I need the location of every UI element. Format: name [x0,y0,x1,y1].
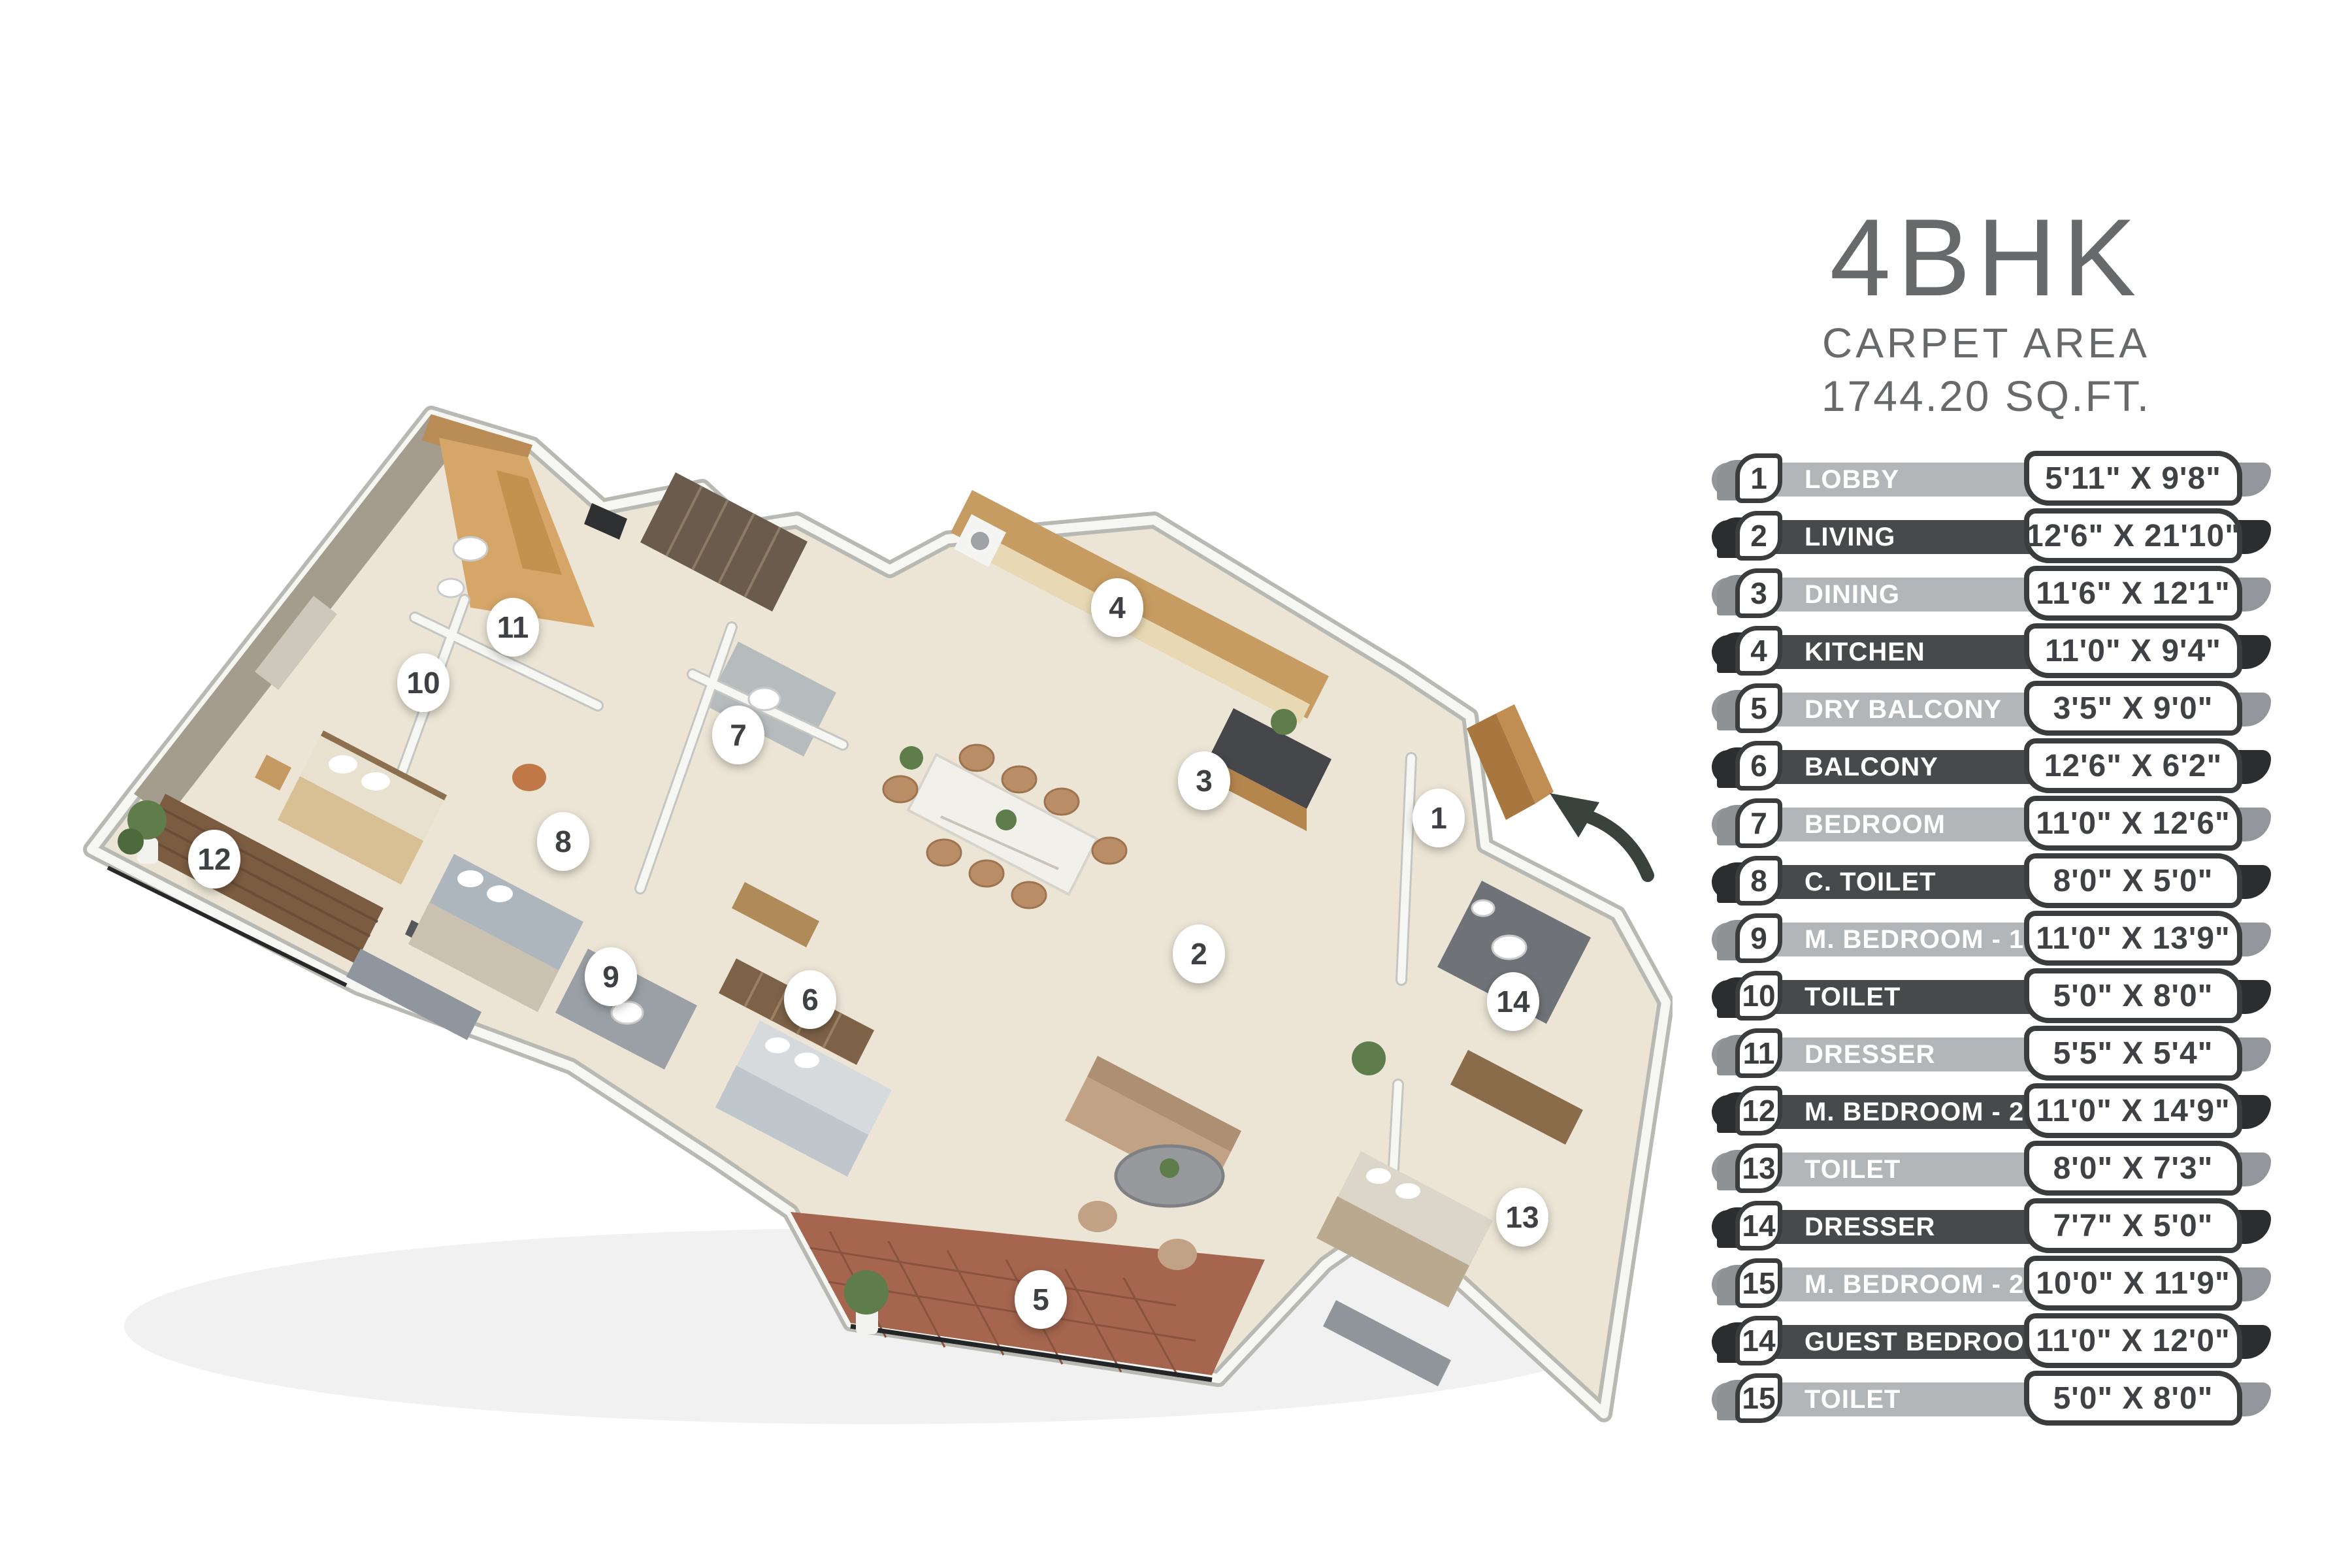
legend-room-label: LIVING [1805,520,1895,554]
room-marker: 11 [487,598,539,657]
legend-room-dimension: 10'0" X 11'9" [2024,1256,2242,1311]
room-marker: 1 [1413,789,1465,847]
legend-room-label: GUEST BEDROOM [1805,1325,2047,1359]
legend-row: LIVING12'6" X 21'10"2 [1712,507,2280,564]
svg-text:4: 4 [1109,591,1126,625]
legend-room-label: BALCONY [1805,750,1938,784]
legend-room-number: 7 [1735,798,1782,848]
legend-room-number: 15 [1735,1373,1782,1423]
legend-room-number: 14 [1735,1201,1782,1250]
legend-row: C. TOILET8'0" X 5'0"8 [1712,852,2280,909]
legend-room-number: 9 [1735,913,1782,963]
svg-text:5: 5 [1032,1282,1049,1316]
svg-text:9: 9 [602,960,619,994]
room-marker: 8 [537,812,589,871]
legend-row: LOBBY5'11" X 9'8"1 [1712,449,2280,507]
legend-room-number: 2 [1735,511,1782,561]
svg-text:13: 13 [1505,1200,1539,1234]
legend-room-number: 12 [1735,1086,1782,1135]
legend-row: KITCHEN11'0" X 9'4"4 [1712,622,2280,679]
room-marker: 4 [1091,578,1143,637]
title-subtitle: CARPET AREA [1699,319,2274,367]
legend-room-number: 5 [1735,683,1782,733]
svg-text:1: 1 [1430,801,1447,835]
legend-room-number: 11 [1735,1028,1782,1078]
floorplan-3d: 1234567891011121314 [39,392,1673,1477]
legend-room-label: C. TOILET [1805,865,1936,899]
legend-row: M. BEDROOM - 111'0" X 13'9"9 [1712,909,2280,967]
legend-row: M. BEDROOM - 211'0" X 14'9"12 [1712,1082,2280,1139]
room-legend: LOBBY5'11" X 9'8"1LIVING12'6" X 21'10"2D… [1712,449,2280,1427]
legend-row: DINING11'6" X 12'1"3 [1712,564,2280,622]
legend-room-dimension: 7'7" X 5'0" [2024,1198,2242,1253]
legend-row: BEDROOM11'0" X 12'6"7 [1712,794,2280,852]
floorplan-area: 1234567891011121314 [39,392,1673,1477]
legend-room-label: M. BEDROOM - 2 [1805,1095,2024,1129]
page-title: 4BHK [1699,203,2274,312]
legend-room-dimension: 11'6" X 12'1" [2024,566,2242,621]
room-marker: 7 [712,706,764,764]
legend-room-dimension: 5'0" X 8'0" [2024,968,2242,1023]
legend-room-number: 1 [1735,453,1782,503]
svg-text:10: 10 [406,666,440,700]
legend-room-dimension: 11'0" X 12'6" [2024,796,2242,851]
svg-text:3: 3 [1196,764,1213,798]
room-marker: 14 [1487,972,1539,1031]
armchair [1078,1201,1117,1232]
legend-room-number: 10 [1735,971,1782,1021]
room-marker: 10 [397,653,449,712]
armchair [1158,1239,1197,1270]
room-marker: 6 [784,970,836,1029]
legend-room-label: BEDROOM [1805,808,1946,841]
legend-room-label: KITCHEN [1805,635,1925,669]
legend-room-dimension: 11'0" X 12'0" [2024,1313,2242,1368]
legend-room-dimension: 11'0" X 13'9" [2024,911,2242,966]
legend-room-dimension: 8'0" X 7'3" [2024,1141,2242,1196]
svg-text:7: 7 [730,718,747,752]
legend-room-dimension: 8'0" X 5'0" [2024,853,2242,908]
legend-row: TOILET5'0" X 8'0"15 [1712,1369,2280,1427]
legend-room-dimension: 5'5" X 5'4" [2024,1026,2242,1081]
room-marker: 2 [1173,924,1225,983]
legend-room-number: 13 [1735,1143,1782,1193]
carpet-area-value: 1744.20 SQ.FT. [1699,371,2274,421]
svg-text:8: 8 [555,825,572,858]
room-marker: 3 [1178,751,1230,810]
room-marker: 13 [1496,1188,1548,1247]
room-marker: 5 [1015,1270,1067,1329]
legend-room-dimension: 5'0" X 8'0" [2024,1371,2242,1426]
floorplan-poster: 1234567891011121314 4BHK CARPET AREA 174… [0,0,2352,1568]
legend-room-dimension: 11'0" X 14'9" [2024,1083,2242,1138]
legend-room-number: 14 [1735,1316,1782,1365]
legend-row: DRESSER7'7" X 5'0"14 [1712,1197,2280,1254]
legend-row: BALCONY12'6" X 6'2"6 [1712,737,2280,794]
legend-room-number: 3 [1735,568,1782,618]
legend-row: TOILET8'0" X 7'3"13 [1712,1139,2280,1197]
legend-row: M. BEDROOM - 210'0" X 11'9"15 [1712,1254,2280,1312]
room-marker: 12 [188,830,240,889]
legend-row: TOILET5'0" X 8'0"10 [1712,967,2280,1024]
legend-room-number: 15 [1735,1258,1782,1308]
legend-room-label: DRESSER [1805,1210,1935,1244]
legend-room-label: TOILET [1805,1152,1901,1186]
legend-room-label: DRESSER [1805,1037,1935,1071]
legend-row: DRESSER5'5" X 5'4"11 [1712,1024,2280,1082]
legend-room-label: TOILET [1805,1382,1901,1416]
svg-text:6: 6 [802,983,819,1017]
room-marker: 9 [585,947,637,1006]
legend-room-dimension: 12'6" X 21'10" [2024,508,2242,563]
svg-text:11: 11 [497,610,529,644]
title-block: 4BHK CARPET AREA 1744.20 SQ.FT. [1699,203,2274,421]
legend-row: GUEST BEDROOM11'0" X 12'0"14 [1712,1312,2280,1369]
svg-text:14: 14 [1496,985,1530,1019]
legend-room-label: DRY BALCONY [1805,693,2002,727]
legend-room-dimension: 11'0" X 9'4" [2024,623,2242,678]
legend-room-dimension: 3'5" X 9'0" [2024,681,2242,736]
legend-room-label: TOILET [1805,980,1901,1014]
legend-room-number: 8 [1735,856,1782,906]
legend-room-dimension: 12'6" X 6'2" [2024,738,2242,793]
entrance-arrow-icon [1550,793,1648,875]
svg-text:12: 12 [197,842,231,876]
legend-room-label: M. BEDROOM - 2 [1805,1267,2024,1301]
legend-row: DRY BALCONY3'5" X 9'0"5 [1712,679,2280,737]
legend-room-dimension: 5'11" X 9'8" [2024,451,2242,506]
svg-text:2: 2 [1190,937,1207,971]
island-plant [1271,709,1297,735]
legend-room-number: 4 [1735,626,1782,676]
legend-room-label: M. BEDROOM - 1 [1805,923,2024,956]
accent-chair [512,764,546,791]
table-plant [996,809,1017,830]
legend-room-number: 6 [1735,741,1782,791]
legend-room-label: LOBBY [1805,463,1899,497]
legend-room-label: DINING [1805,578,1900,612]
